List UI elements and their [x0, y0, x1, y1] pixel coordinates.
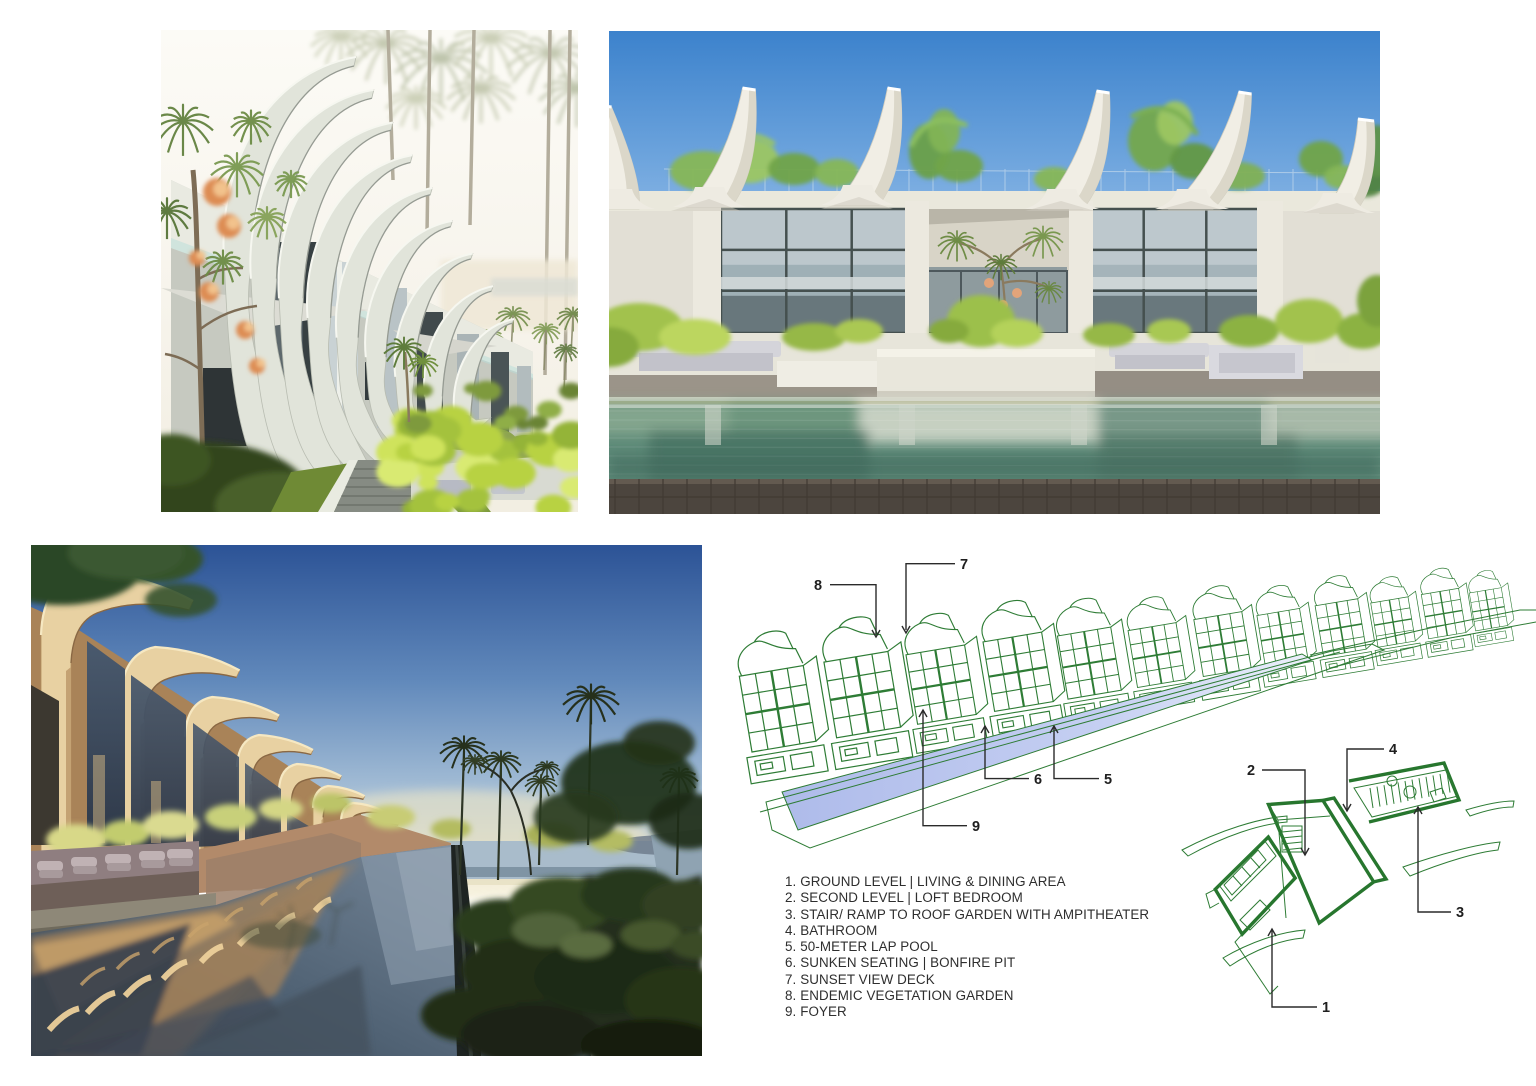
- svg-text:8: 8: [814, 578, 822, 594]
- svg-text:3: 3: [1456, 905, 1464, 921]
- svg-text:7: 7: [960, 557, 968, 573]
- svg-text:6: 6: [1034, 772, 1042, 788]
- svg-text:9: 9: [972, 819, 980, 835]
- svg-text:2: 2: [1247, 763, 1255, 779]
- svg-text:5: 5: [1104, 772, 1112, 788]
- svg-text:4: 4: [1389, 742, 1397, 758]
- svg-text:1: 1: [1322, 1000, 1330, 1016]
